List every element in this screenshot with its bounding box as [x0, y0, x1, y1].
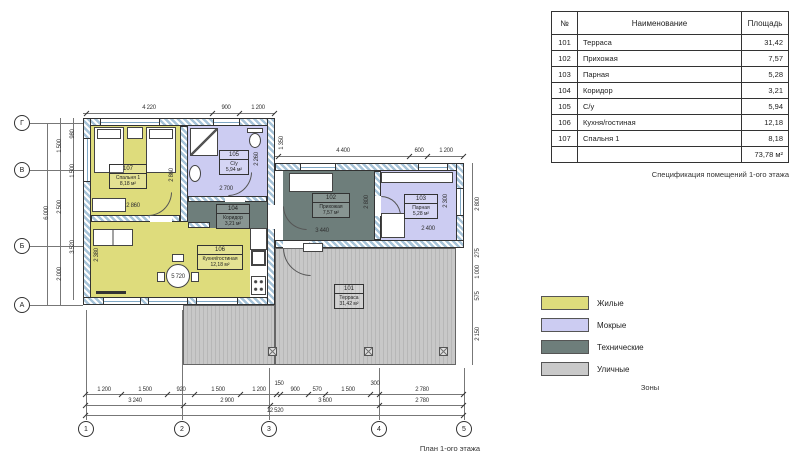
- dim-label: 3 240: [115, 398, 155, 404]
- room-label-bedroom: 107Спальня 18,18 м²: [109, 164, 147, 189]
- table-row: 102Прихожая7,57: [552, 50, 788, 66]
- dim-label: 1 500: [57, 126, 63, 166]
- legend-swatch-wet: [541, 318, 589, 332]
- shower-icon: [190, 128, 218, 156]
- dim-label: 6 000: [44, 193, 50, 233]
- legend-label-technical: Технические: [597, 343, 644, 352]
- dim-label: 3 520: [70, 227, 76, 267]
- dim-label: 2 500: [57, 187, 63, 227]
- window-bedroom-top: [100, 118, 160, 126]
- room-label-bathroom: 105С/у5,94 м²: [219, 150, 249, 175]
- col-header-name: Наименование: [578, 12, 742, 34]
- bed-pillow: [149, 129, 173, 139]
- sink-icon: [189, 165, 201, 182]
- dim-label: 300: [355, 381, 395, 387]
- dim-label: 2 380: [94, 235, 100, 275]
- table-row: 104Коридор3,21: [552, 82, 788, 98]
- kitchen-counter: [250, 228, 267, 250]
- window-kitchen-bottom-1: [103, 297, 141, 305]
- dim-label: 2 400: [408, 226, 448, 232]
- spec-table: № Наименование Площадь 101Терраса31,42 1…: [551, 11, 789, 163]
- dim-line-bottom-2: [86, 405, 464, 406]
- room-label-corridor: 104Коридор3,21 м²: [216, 204, 250, 229]
- dim-label: 2 780: [402, 387, 442, 393]
- chair: [172, 254, 184, 262]
- axis-bubble-col: 2: [174, 421, 190, 437]
- axis-bubble-row: Б: [14, 238, 30, 254]
- dim-label: 1 500: [328, 387, 368, 393]
- window-sauna-top: [418, 163, 448, 171]
- table-row: 101Терраса31,42: [552, 34, 788, 50]
- dim-label: 2 260: [254, 139, 260, 179]
- kitchen-sink-icon: [251, 250, 266, 266]
- dim-label: 920: [161, 387, 201, 393]
- axis-bubble-row: Г: [14, 115, 30, 131]
- table-row: 106Кухня/гостиная12,18: [552, 114, 788, 130]
- dim-line-bottom-total: [86, 415, 464, 416]
- tv-stand: [96, 291, 126, 294]
- dim-label: 2 900: [207, 398, 247, 404]
- dim-label: 2 300: [443, 181, 449, 221]
- legend-caption: Зоны: [600, 383, 700, 392]
- terrace-post: [439, 347, 448, 356]
- table-row: 105С/у5,94: [552, 98, 788, 114]
- dim-line-wing-top: [275, 156, 464, 157]
- terrace-post: [364, 347, 373, 356]
- entry-step: [303, 243, 323, 252]
- dim-label: 2 700: [206, 186, 246, 192]
- dim-label: 1 200: [84, 387, 124, 393]
- dim-tick: [272, 111, 278, 117]
- terrace-post: [268, 347, 277, 356]
- dim-label: 5 720: [158, 274, 198, 280]
- dim-label: 1 200: [426, 148, 466, 154]
- axis-bubble-row: В: [14, 162, 30, 178]
- bed-pillow: [97, 129, 121, 139]
- window-bathroom-top: [213, 118, 240, 126]
- wardrobe: [289, 173, 333, 192]
- dim-label: 2 150: [475, 314, 481, 354]
- axis-bubble-row: А: [14, 297, 30, 313]
- dim-line-top: [83, 113, 275, 114]
- legend-swatch-technical: [541, 340, 589, 354]
- legend-label-outdoor: Уличные: [597, 365, 629, 374]
- room-label-sauna: 103Парная5,28 м²: [404, 194, 438, 219]
- door-gap-bedroom: [150, 216, 172, 222]
- window-kitchen-bottom-2: [148, 297, 188, 305]
- dim-label: 4 220: [129, 105, 169, 111]
- axis-leader: [30, 305, 83, 306]
- dim-label: 4 400: [323, 148, 363, 154]
- axis-bubble-col: 4: [371, 421, 387, 437]
- window-sauna-right: [456, 188, 464, 216]
- dim-label: 1 500: [70, 151, 76, 191]
- room-label-kitchen: 106Кухня/гостиная12,18 м²: [197, 245, 243, 270]
- axis-bubble-col: 3: [261, 421, 277, 437]
- window-hall-top: [300, 163, 336, 171]
- table-total-row: 73,78 м²: [552, 146, 788, 162]
- dim-label: 3 600: [305, 398, 345, 404]
- table-row: 103Парная5,28: [552, 66, 788, 82]
- window-kitchen-bottom-3: [196, 297, 238, 305]
- dim-line-right: [472, 163, 473, 365]
- spec-header-row: № Наименование Площадь: [552, 12, 788, 34]
- legend-label-wet: Мокрые: [597, 321, 626, 330]
- col-header-area: Площадь: [742, 12, 788, 34]
- nightstand: [127, 127, 143, 139]
- legend-label-residential: Жилые: [597, 299, 624, 308]
- col-header-num: №: [552, 12, 578, 34]
- legend-swatch-residential: [541, 296, 589, 310]
- partition-bedroom-bathroom: [180, 126, 188, 222]
- dim-label: 2 800: [364, 182, 370, 222]
- total-area: 73,78 м²: [742, 147, 788, 162]
- window-bedroom-left: [83, 138, 91, 182]
- dim-label: 2 780: [402, 398, 442, 404]
- room-label-terrace: 101Терраса31,42 м²: [334, 284, 364, 309]
- terrace-deck-left: [183, 305, 275, 365]
- dim-label: 2 800: [475, 184, 481, 224]
- legend-swatch-outdoor: [541, 362, 589, 376]
- dim-label: 575: [475, 276, 481, 316]
- dim-tick: [461, 154, 467, 160]
- door-gap-hall-corridor: [268, 205, 275, 229]
- dim-label: 2 860: [169, 155, 175, 195]
- dim-label: 2 000: [57, 254, 63, 294]
- dim-label: 1 500: [125, 387, 165, 393]
- dim-label: 2 860: [113, 203, 153, 209]
- dim-label: 12 520: [255, 408, 295, 414]
- dim-label: 3 440: [302, 228, 342, 234]
- dim-label: 1 500: [198, 387, 238, 393]
- door-gap-bathroom: [225, 197, 245, 202]
- room-label-hall: 102Прихожая7,57 м²: [312, 193, 350, 218]
- spec-table-caption: Спецификация помещений 1-ого этажа: [551, 170, 789, 179]
- dim-label: 1 200: [239, 387, 279, 393]
- dim-label: 1 200: [238, 105, 278, 111]
- sauna-bench: [381, 213, 405, 238]
- dim-label: 1 350: [279, 123, 285, 163]
- table-row: 107Спальня 18,18: [552, 130, 788, 146]
- plan-caption: План 1-ого этажа: [380, 444, 520, 453]
- stove-icon: [251, 276, 266, 295]
- partition-corridor-kitchen: [188, 222, 210, 228]
- dim-label: 980: [70, 114, 76, 154]
- axis-bubble-col: 1: [78, 421, 94, 437]
- axis-bubble-col: 5: [456, 421, 472, 437]
